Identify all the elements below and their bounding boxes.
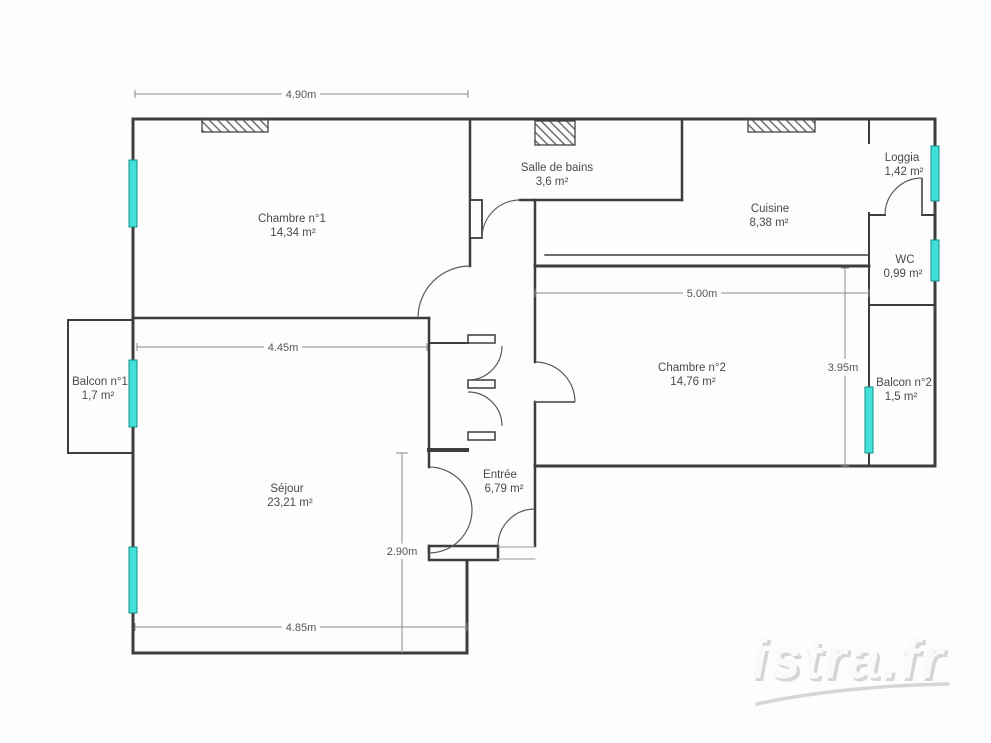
dim-label-5-00: 5.00m bbox=[687, 288, 718, 300]
wall-closet-jamb-2 bbox=[468, 380, 495, 388]
door-arc-bathroom bbox=[482, 200, 520, 238]
vent-cuisine bbox=[748, 119, 815, 132]
room-name-cuisine: Cuisine bbox=[751, 203, 789, 215]
door-arc-chambre1 bbox=[418, 266, 470, 318]
dim-label-3-95: 3.95m bbox=[828, 362, 859, 374]
watermark: istra.fr istra.fr bbox=[751, 627, 948, 704]
hatched-vents bbox=[202, 119, 815, 145]
dim-label-2-90: 2.90m bbox=[387, 546, 418, 558]
room-area-balcon1: 1,7 m² bbox=[82, 390, 115, 402]
window-chambre1 bbox=[129, 160, 137, 227]
room-area-chambre2: 14,76 m² bbox=[670, 376, 716, 388]
door-arc-chambre2 bbox=[535, 362, 575, 402]
window-sejour-upper bbox=[129, 360, 137, 427]
room-name-chambre2: Chambre n°2 bbox=[658, 362, 726, 374]
wall-closet-jamb-1 bbox=[468, 335, 495, 343]
door-arc-loggia bbox=[885, 178, 922, 215]
room-name-wc: WC bbox=[895, 254, 914, 266]
room-area-balcon2: 1,5 m² bbox=[885, 391, 918, 403]
wall-pilaster-bathroom bbox=[470, 200, 482, 238]
room-area-chambre1: 14,34 m² bbox=[270, 227, 316, 239]
room-name-balcon1: Balcon n°1 bbox=[72, 376, 128, 388]
room-area-loggia: 1,42 m² bbox=[885, 166, 924, 178]
vent-bathroom bbox=[535, 121, 575, 145]
room-area-entree: 6,79 m² bbox=[485, 483, 524, 495]
room-area-wc: 0,99 m² bbox=[884, 268, 923, 280]
entrance-opening-lines bbox=[498, 547, 535, 559]
watermark-text: istra.fr bbox=[751, 627, 945, 691]
room-labels: Chambre n°1 14,34 m² Salle de bains 3,6 … bbox=[72, 152, 932, 509]
room-name-salle-de-bains: Salle de bains bbox=[521, 162, 593, 174]
room-name-chambre1: Chambre n°1 bbox=[258, 213, 326, 225]
room-name-balcon2: Balcon n°2 bbox=[876, 377, 932, 389]
wall-entrance-threshold bbox=[429, 546, 498, 560]
room-name-sejour: Séjour bbox=[270, 483, 303, 495]
window-balcon2 bbox=[865, 387, 873, 453]
floor-plan-page: 4.90m 4.45m 5.00m 4.85m 3.95m 2.90m Cham… bbox=[0, 0, 991, 743]
room-name-loggia: Loggia bbox=[885, 152, 920, 164]
room-area-cuisine: 8,38 m² bbox=[750, 217, 789, 229]
outer-wall-left-bottom bbox=[133, 119, 467, 653]
door-arc-entrance bbox=[498, 509, 535, 546]
dim-label-4-45: 4.45m bbox=[268, 342, 299, 354]
vent-chambre1 bbox=[202, 119, 268, 132]
wall-closet-jamb-3 bbox=[468, 432, 495, 440]
room-area-sejour: 23,21 m² bbox=[267, 497, 313, 509]
room-name-entree: Entrée bbox=[483, 469, 517, 481]
window-loggia bbox=[931, 146, 939, 201]
dim-label-4-90: 4.90m bbox=[286, 89, 317, 101]
walls bbox=[68, 119, 935, 653]
door-arc-closet-upper bbox=[468, 346, 502, 380]
dimension-lines bbox=[135, 90, 869, 653]
window-wc bbox=[931, 240, 939, 281]
door-arc-closet-lower bbox=[468, 392, 502, 426]
room-area-salle-de-bains: 3,6 m² bbox=[536, 176, 569, 188]
floor-plan-svg: 4.90m 4.45m 5.00m 4.85m 3.95m 2.90m Cham… bbox=[0, 0, 991, 743]
dim-label-4-85: 4.85m bbox=[286, 622, 317, 634]
door-arc-sejour-double bbox=[429, 467, 472, 553]
window-sejour-lower bbox=[129, 547, 137, 613]
